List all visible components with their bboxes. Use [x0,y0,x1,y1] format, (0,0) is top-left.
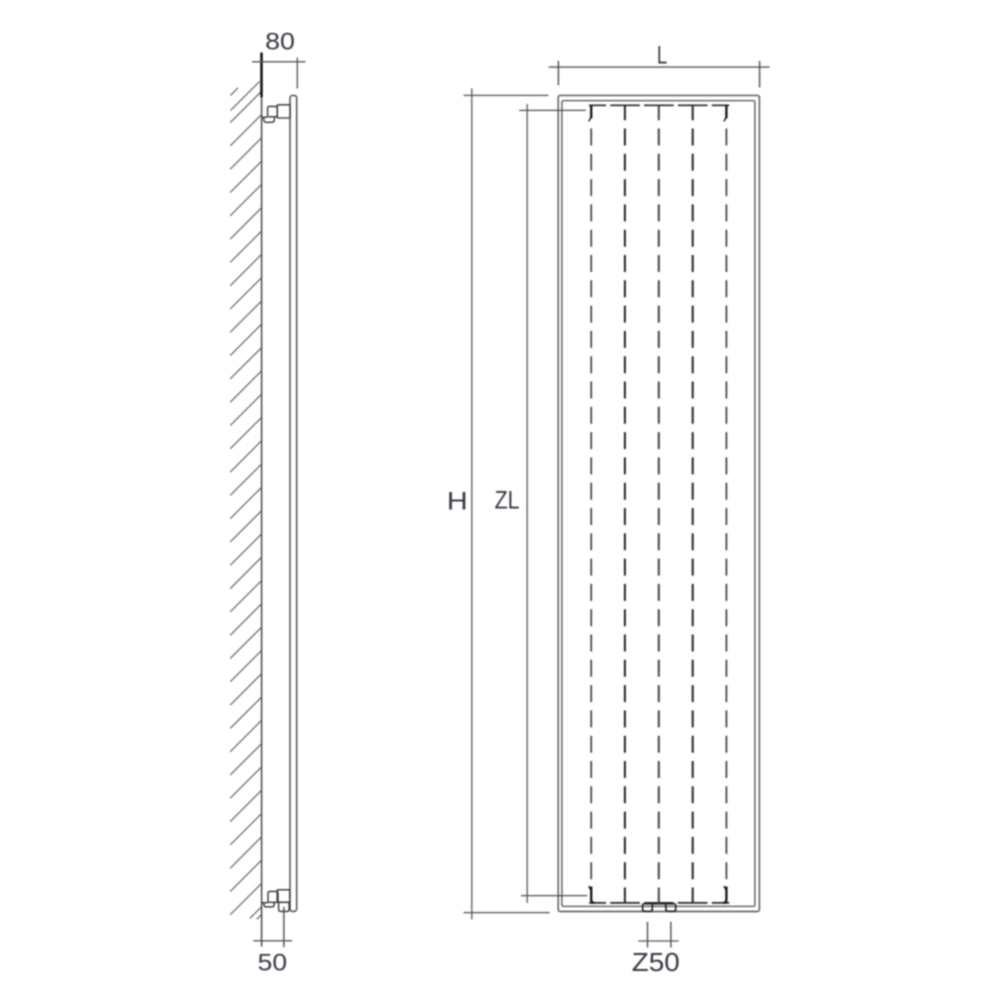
svg-text:H: H [447,487,468,515]
svg-text:Z50: Z50 [632,947,680,977]
svg-text:80: 80 [265,28,295,55]
svg-text:L: L [657,41,667,69]
svg-text:50: 50 [258,949,287,976]
svg-text:ZL: ZL [495,487,520,515]
